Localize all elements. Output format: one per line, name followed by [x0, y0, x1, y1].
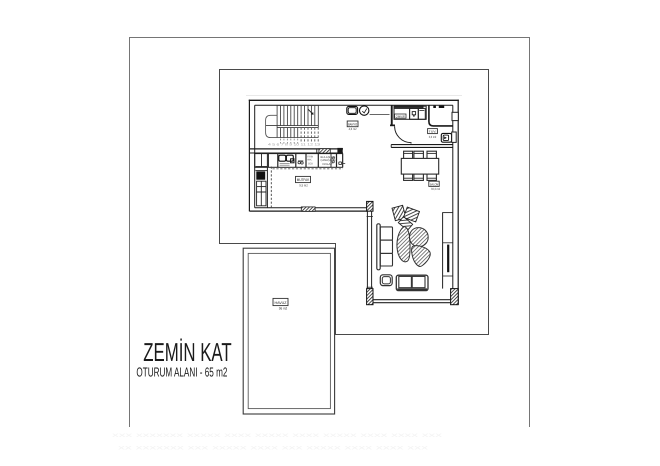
svg-text:33,3 m2: 33,3 m2	[431, 187, 440, 191]
svg-text:4,6 m2: 4,6 m2	[349, 127, 357, 131]
svg-text:ÇAMAŞIR: ÇAMAŞIR	[396, 114, 405, 118]
svg-text:3,6 m2: 3,6 m2	[429, 135, 437, 139]
svg-text:36 m2: 36 m2	[279, 306, 288, 310]
svg-text:DOLAP: DOLAP	[323, 163, 333, 166]
svg-text:TUV.: TUV.	[429, 130, 437, 134]
svg-text:OCK: OCK	[308, 162, 313, 165]
svg-text:MUTFAK: MUTFAK	[297, 178, 310, 182]
svg-text:xxx xxxxxxx xxxxx xxxx xxxxx x: xxx xxxxxxx xxxxx xxxx xxxxx xxxx xxxxx …	[112, 432, 444, 439]
svg-text:BANYO: BANYO	[348, 122, 357, 126]
svg-text:4 5 6 7 8 9 10 11 12 13: 4 5 6 7 8 9 10 11 12 13	[268, 143, 320, 147]
svg-text:ANK.: ANK.	[307, 159, 312, 162]
svg-text:SALON: SALON	[430, 182, 439, 186]
svg-text:9,5 m2: 9,5 m2	[299, 184, 308, 188]
svg-text:xx xxxxxxx xxx xxxxx xxxx xxx: xx xxxxxxx xxx xxxxx xxxx xxx xxxxx xxxx…	[118, 445, 430, 452]
svg-text:ZEMİN KAT: ZEMİN KAT	[143, 337, 232, 367]
svg-text:OTURUM ALANI - 65 m2: OTURUM ALANI - 65 m2	[136, 364, 227, 379]
svg-text:HAVUZ: HAVUZ	[275, 301, 288, 305]
